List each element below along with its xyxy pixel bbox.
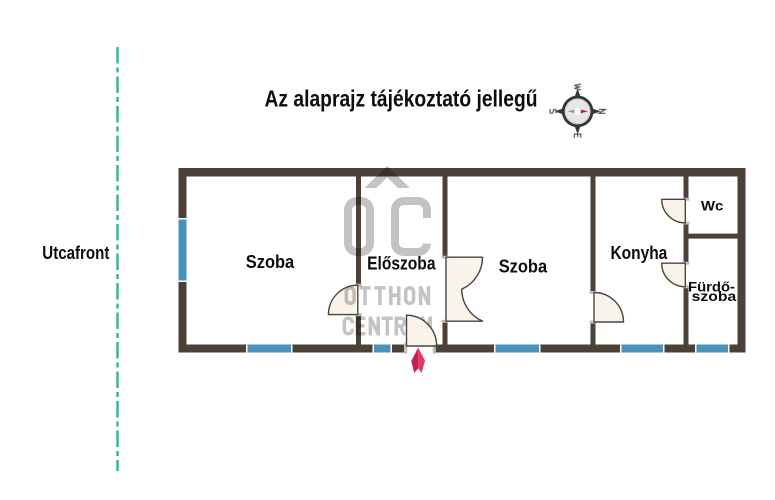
svg-text:Előszoba: Előszoba (367, 253, 436, 274)
svg-text:Utcafront: Utcafront (42, 242, 109, 263)
svg-text:Az alaprajz tájékoztató jelleg: Az alaprajz tájékoztató jellegű (265, 86, 538, 112)
svg-text:Konyha: Konyha (611, 242, 668, 263)
svg-text:Szoba: Szoba (246, 251, 295, 272)
svg-text:Wc: Wc (701, 199, 724, 215)
svg-text:szoba: szoba (692, 288, 737, 304)
svg-text:Szoba: Szoba (499, 256, 548, 277)
